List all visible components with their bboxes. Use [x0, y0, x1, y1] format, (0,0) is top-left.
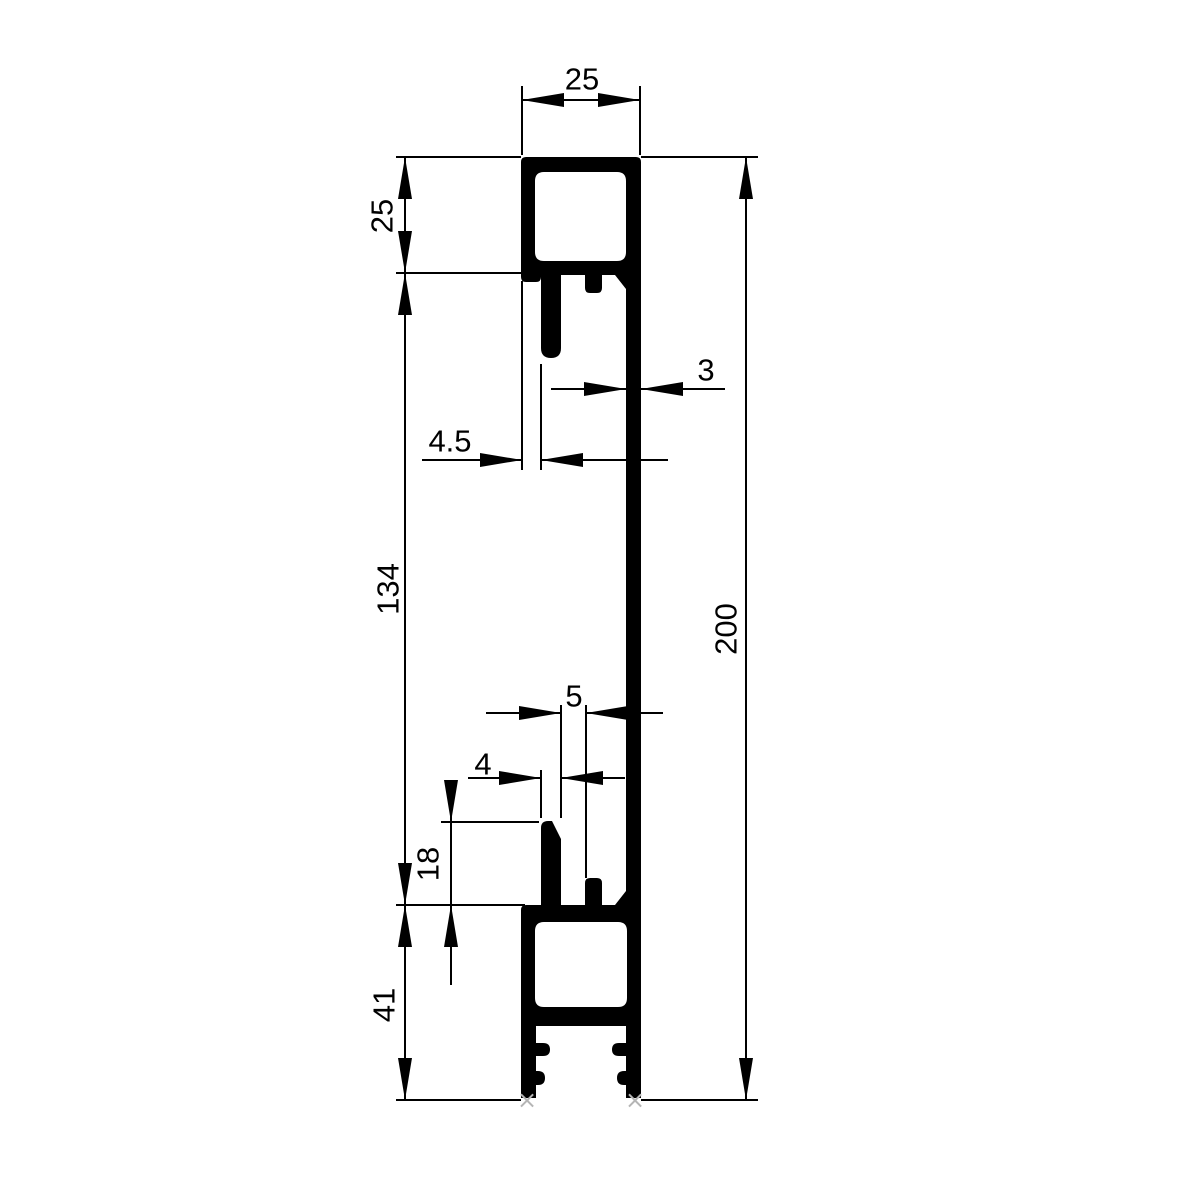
arrow-left-icon	[561, 771, 603, 785]
dim-label-top-width: 25	[565, 62, 599, 97]
dim-label-bottom-prong-height: 18	[411, 847, 446, 881]
arrow-left-icon	[522, 93, 564, 107]
arrow-right-icon	[519, 706, 561, 720]
arrow-up-icon	[739, 157, 753, 199]
top-prong	[541, 273, 561, 358]
arrow-up-icon	[398, 273, 412, 315]
technical-drawing-canvas: × × 25	[0, 0, 1200, 1200]
dim-bottom-prong-height: 18	[411, 780, 459, 985]
bottom-box	[521, 905, 641, 1026]
dim-label-bottom-prong-width: 4	[474, 747, 491, 782]
channel-tooth-upper-right	[612, 1043, 626, 1056]
arrow-left-icon	[541, 453, 583, 467]
bottom-nub	[585, 878, 602, 905]
dim-label-web-thickness: 3	[697, 353, 714, 388]
arrow-right-icon	[480, 453, 522, 467]
profile-shape: × ×	[517, 157, 645, 1114]
arrow-up-icon	[398, 157, 412, 199]
bottom-prong	[541, 821, 561, 905]
arrow-down-icon	[739, 1058, 753, 1100]
arrow-right-icon	[598, 93, 640, 107]
arrow-left-icon	[586, 706, 628, 720]
drawing-page: × × 25	[0, 0, 1200, 1200]
arrow-right-icon	[499, 771, 541, 785]
channel-tooth-upper-left	[536, 1043, 550, 1056]
top-nub	[585, 273, 602, 293]
web-fillet-top	[615, 275, 626, 289]
arrow-left-icon	[641, 382, 683, 396]
dim-bottom-prong-width: 4	[468, 747, 625, 786]
channel-tooth-lower-left	[536, 1071, 545, 1085]
arrow-down-icon	[444, 780, 458, 822]
arrow-down-icon	[398, 1058, 412, 1100]
dim-label-total-height: 200	[709, 603, 744, 655]
web	[626, 270, 641, 910]
arrow-right-icon	[584, 382, 626, 396]
arrow-up-icon	[444, 905, 458, 947]
top-box	[521, 157, 641, 275]
dim-label-middle-height: 134	[371, 563, 406, 615]
arrow-up-icon	[398, 905, 412, 947]
channel-tooth-lower-right	[617, 1071, 626, 1085]
dim-label-bottom-height: 41	[367, 988, 402, 1022]
web-fillet-bottom	[615, 891, 626, 905]
dim-total-height: 200	[709, 157, 754, 1100]
dim-label-top-prong-offset: 4.5	[428, 424, 471, 459]
dim-label-bottom-slot-width: 5	[565, 679, 582, 714]
arrow-down-icon	[398, 231, 412, 273]
dim-left-chain: 25 134 41	[365, 157, 413, 1100]
dim-top-width: 25	[522, 62, 640, 108]
top-lip	[521, 273, 541, 282]
dim-label-top-box-height: 25	[365, 199, 400, 233]
